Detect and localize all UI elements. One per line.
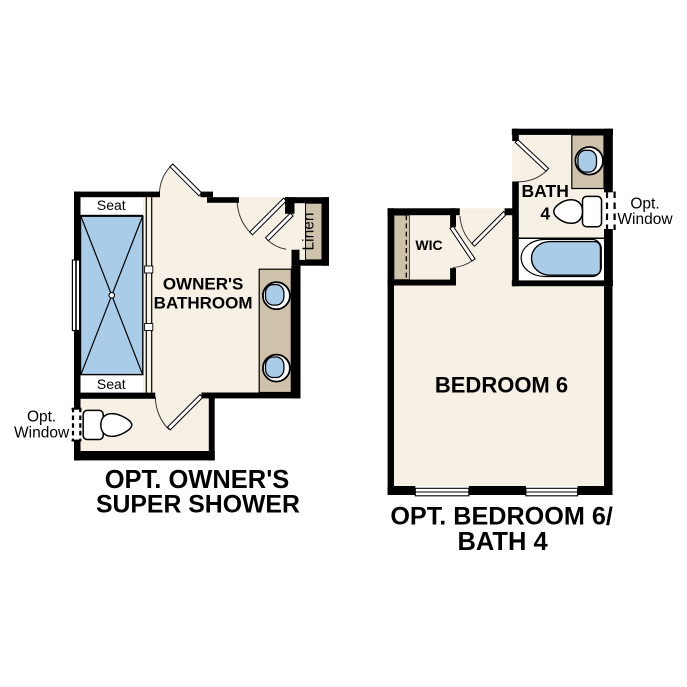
svg-text:WIC: WIC bbox=[415, 237, 442, 253]
svg-text:Window: Window bbox=[14, 425, 70, 442]
svg-text:BATHROOM: BATHROOM bbox=[154, 294, 253, 313]
svg-text:Seat: Seat bbox=[97, 376, 126, 392]
svg-text:BATH 4: BATH 4 bbox=[457, 528, 548, 556]
svg-text:BATH: BATH bbox=[522, 181, 569, 201]
svg-text:OPT. OWNER'S: OPT. OWNER'S bbox=[105, 466, 290, 494]
svg-text:SUPER SHOWER: SUPER SHOWER bbox=[96, 492, 300, 519]
svg-text:4: 4 bbox=[540, 204, 550, 224]
svg-text:Window: Window bbox=[617, 211, 673, 228]
svg-text:OPT. BEDROOM 6/: OPT. BEDROOM 6/ bbox=[390, 502, 613, 530]
svg-text:Seat: Seat bbox=[97, 197, 126, 213]
svg-text:Opt.: Opt. bbox=[630, 196, 659, 213]
svg-text:Linen: Linen bbox=[301, 213, 318, 251]
svg-text:BEDROOM 6: BEDROOM 6 bbox=[435, 372, 568, 397]
svg-text:Opt.: Opt. bbox=[27, 409, 56, 426]
svg-text:OWNER'S: OWNER'S bbox=[163, 274, 244, 293]
